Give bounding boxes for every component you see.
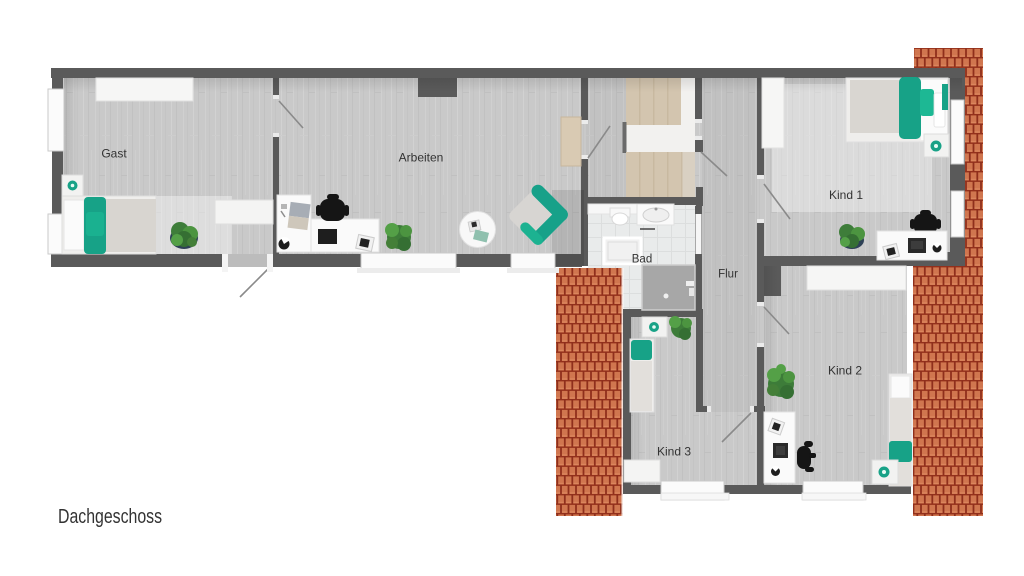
svg-text:Kind 3: Kind 3 [657,445,691,459]
svg-text:Arbeiten: Arbeiten [399,151,444,165]
svg-text:Kind 1: Kind 1 [829,188,863,202]
svg-text:Flur: Flur [718,269,738,281]
svg-text:Kind 2: Kind 2 [828,364,862,378]
svg-text:Bad: Bad [632,254,652,266]
svg-text:Gast: Gast [101,147,127,161]
svg-text:Dachgeschoss: Dachgeschoss [58,506,162,528]
